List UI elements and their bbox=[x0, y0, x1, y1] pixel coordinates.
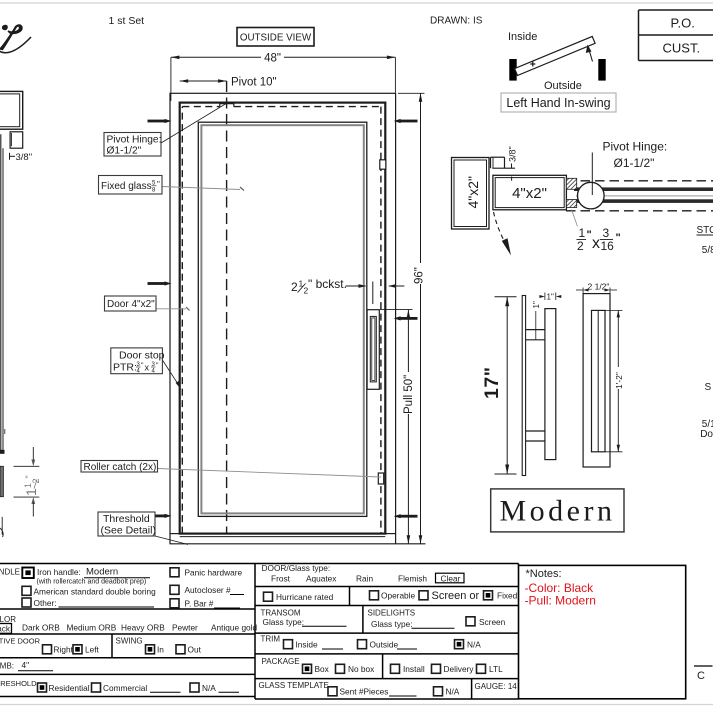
svg-text:N/A: N/A bbox=[202, 683, 216, 693]
svg-text:Residential: Residential bbox=[49, 683, 90, 693]
svg-text:S: S bbox=[705, 382, 712, 393]
svg-text:16: 16 bbox=[601, 239, 615, 253]
svg-text:Other:: Other: bbox=[34, 598, 57, 608]
svg-text:TRIM: TRIM bbox=[261, 635, 281, 644]
svg-text:": " bbox=[616, 232, 621, 244]
svg-text:Delivery: Delivery bbox=[444, 664, 475, 674]
svg-text:In: In bbox=[157, 645, 164, 655]
svg-text:5/8: 5/8 bbox=[702, 245, 713, 256]
svg-text:2 1/2": 2 1/2" bbox=[588, 281, 610, 291]
svg-text:Door stop: Door stop bbox=[119, 350, 165, 362]
svg-text:N/A: N/A bbox=[446, 687, 460, 697]
svg-text:Modern: Modern bbox=[500, 495, 616, 528]
svg-text:Threshold: Threshold bbox=[103, 513, 150, 525]
svg-text:GAUGE: 14: GAUGE: 14 bbox=[475, 682, 518, 691]
svg-text:DECORATIVE DOOR: DECORATIVE DOOR bbox=[0, 636, 41, 645]
svg-text:CUST.: CUST. bbox=[663, 41, 701, 56]
svg-text:Outside: Outside bbox=[370, 640, 399, 650]
svg-text:SWING: SWING bbox=[116, 636, 143, 645]
svg-text:": " bbox=[24, 475, 34, 478]
svg-text:1'-2": 1'-2" bbox=[614, 372, 624, 389]
svg-text:PACKAGE: PACKAGE bbox=[262, 657, 300, 666]
svg-text:Modern: Modern bbox=[86, 567, 118, 578]
svg-text:3/8": 3/8" bbox=[508, 146, 518, 162]
svg-text:x: x bbox=[145, 363, 150, 373]
svg-text:Clear: Clear bbox=[441, 573, 461, 583]
svg-text:Screen: Screen bbox=[479, 617, 506, 627]
svg-text:2: 2 bbox=[291, 280, 298, 294]
svg-text:Inside: Inside bbox=[296, 640, 319, 650]
svg-text:PTR:: PTR: bbox=[113, 362, 137, 374]
svg-text:JAMB:: JAMB: bbox=[0, 661, 14, 670]
svg-text:Glass type:: Glass type: bbox=[371, 619, 413, 629]
svg-text:(with rollercatch and deadbolt: (with rollercatch and deadbolt prep) bbox=[37, 579, 147, 586]
svg-text:Flemish: Flemish bbox=[398, 573, 427, 583]
svg-text:Outside: Outside bbox=[544, 80, 582, 92]
svg-text:1 st Set: 1 st Set bbox=[109, 15, 145, 27]
svg-text:N/A: N/A bbox=[467, 640, 481, 650]
svg-text:Pivot Hinge:: Pivot Hinge: bbox=[107, 135, 162, 146]
svg-text:(See Detail): (See Detail) bbox=[101, 525, 156, 537]
svg-text:P. Bar #: P. Bar # bbox=[185, 599, 214, 609]
svg-text:Roller catch (2x): Roller catch (2x) bbox=[84, 462, 157, 473]
svg-text:2: 2 bbox=[577, 239, 584, 253]
svg-text:Fixed: Fixed bbox=[497, 591, 518, 601]
svg-text:GLASS TEMPLATE: GLASS TEMPLATE bbox=[259, 681, 329, 690]
svg-text:Frost: Frost bbox=[271, 573, 291, 583]
svg-text:Left: Left bbox=[85, 645, 100, 655]
svg-text:96": 96" bbox=[414, 267, 426, 284]
svg-text:Operable: Operable bbox=[381, 591, 416, 601]
svg-text:4": 4" bbox=[22, 660, 30, 670]
svg-text:Sent #Pieces: Sent #Pieces bbox=[340, 687, 389, 697]
svg-text:Pivot Hinge:: Pivot Hinge: bbox=[603, 140, 668, 154]
svg-text:Glass type:: Glass type: bbox=[263, 617, 305, 627]
svg-text:Hurricane rated: Hurricane rated bbox=[276, 592, 334, 602]
svg-text:1": 1" bbox=[532, 301, 541, 308]
svg-text:Aquatex: Aquatex bbox=[306, 573, 337, 583]
svg-text:Dark ORB: Dark ORB bbox=[22, 623, 60, 633]
svg-text:" bckst.: " bckst. bbox=[308, 277, 347, 291]
svg-text:": " bbox=[587, 229, 592, 241]
svg-text:48": 48" bbox=[264, 53, 281, 65]
svg-text:Medium ORB: Medium ORB bbox=[67, 623, 117, 633]
svg-text:Ø1-1/2": Ø1-1/2" bbox=[614, 156, 655, 170]
svg-text:Install: Install bbox=[403, 664, 425, 674]
svg-text:3/8": 3/8" bbox=[16, 152, 33, 163]
svg-text:Black: Black bbox=[0, 623, 11, 633]
svg-text:Commercial: Commercial bbox=[103, 683, 147, 693]
svg-text:DOOR/Glass type:: DOOR/Glass type: bbox=[262, 563, 331, 573]
svg-text:Panic hardware: Panic hardware bbox=[185, 568, 243, 578]
svg-text:x: x bbox=[592, 235, 600, 252]
svg-text:P.O.: P.O. bbox=[671, 16, 695, 31]
svg-text:Out: Out bbox=[188, 645, 202, 655]
svg-text:Door 4"x2": Door 4"x2" bbox=[107, 299, 155, 310]
svg-text:SIDELIGHTS: SIDELIGHTS bbox=[368, 608, 416, 617]
svg-text:Pewter: Pewter bbox=[172, 623, 198, 633]
svg-text:STO: STO bbox=[697, 225, 713, 236]
svg-text:HANDLE: HANDLE bbox=[0, 568, 20, 577]
svg-text:OUTSIDE VIEW: OUTSIDE VIEW bbox=[240, 33, 312, 44]
svg-text:4"x2": 4"x2" bbox=[465, 176, 481, 209]
svg-text:LTL: LTL bbox=[489, 664, 503, 674]
svg-text:C: C bbox=[697, 670, 705, 682]
svg-text:Ø1-1/2": Ø1-1/2" bbox=[107, 146, 142, 157]
svg-text:THRESHOLD: THRESHOLD bbox=[0, 679, 37, 688]
svg-text:Do: Do bbox=[700, 429, 713, 440]
svg-text:Left Hand In-swing: Left Hand In-swing bbox=[506, 96, 610, 110]
svg-text:Box: Box bbox=[315, 664, 330, 674]
svg-text:Right: Right bbox=[54, 645, 74, 655]
svg-text:": " bbox=[157, 180, 160, 189]
svg-text:1: 1 bbox=[23, 488, 39, 496]
svg-text:Autocloser #: Autocloser # bbox=[185, 585, 232, 595]
svg-text:17": 17" bbox=[481, 367, 503, 399]
svg-text:-Pull: Modern: -Pull: Modern bbox=[525, 594, 596, 608]
svg-text:Heavy ORB: Heavy ORB bbox=[121, 623, 165, 633]
svg-text:3: 3 bbox=[603, 226, 610, 240]
svg-text:American standard double borin: American standard double boring bbox=[34, 586, 157, 596]
svg-text:Antique gold: Antique gold bbox=[211, 623, 258, 633]
svg-text:Inside: Inside bbox=[508, 31, 537, 43]
svg-text:Pull 50": Pull 50" bbox=[403, 375, 415, 414]
svg-text:*Notes:: *Notes: bbox=[526, 568, 562, 580]
svg-text:Fixed glass: Fixed glass bbox=[101, 181, 152, 192]
svg-text:DRAWN: IS: DRAWN: IS bbox=[430, 16, 483, 27]
svg-text:Iron handle:: Iron handle: bbox=[37, 567, 81, 577]
svg-text:Rain: Rain bbox=[356, 573, 373, 583]
svg-text:Screen or: Screen or bbox=[432, 590, 480, 602]
svg-text:1": 1" bbox=[547, 293, 554, 302]
svg-text:4"x2": 4"x2" bbox=[512, 185, 547, 202]
svg-text:No box: No box bbox=[348, 664, 375, 674]
svg-text:Pivot 10": Pivot 10" bbox=[231, 77, 277, 89]
svg-text:1: 1 bbox=[579, 226, 586, 240]
